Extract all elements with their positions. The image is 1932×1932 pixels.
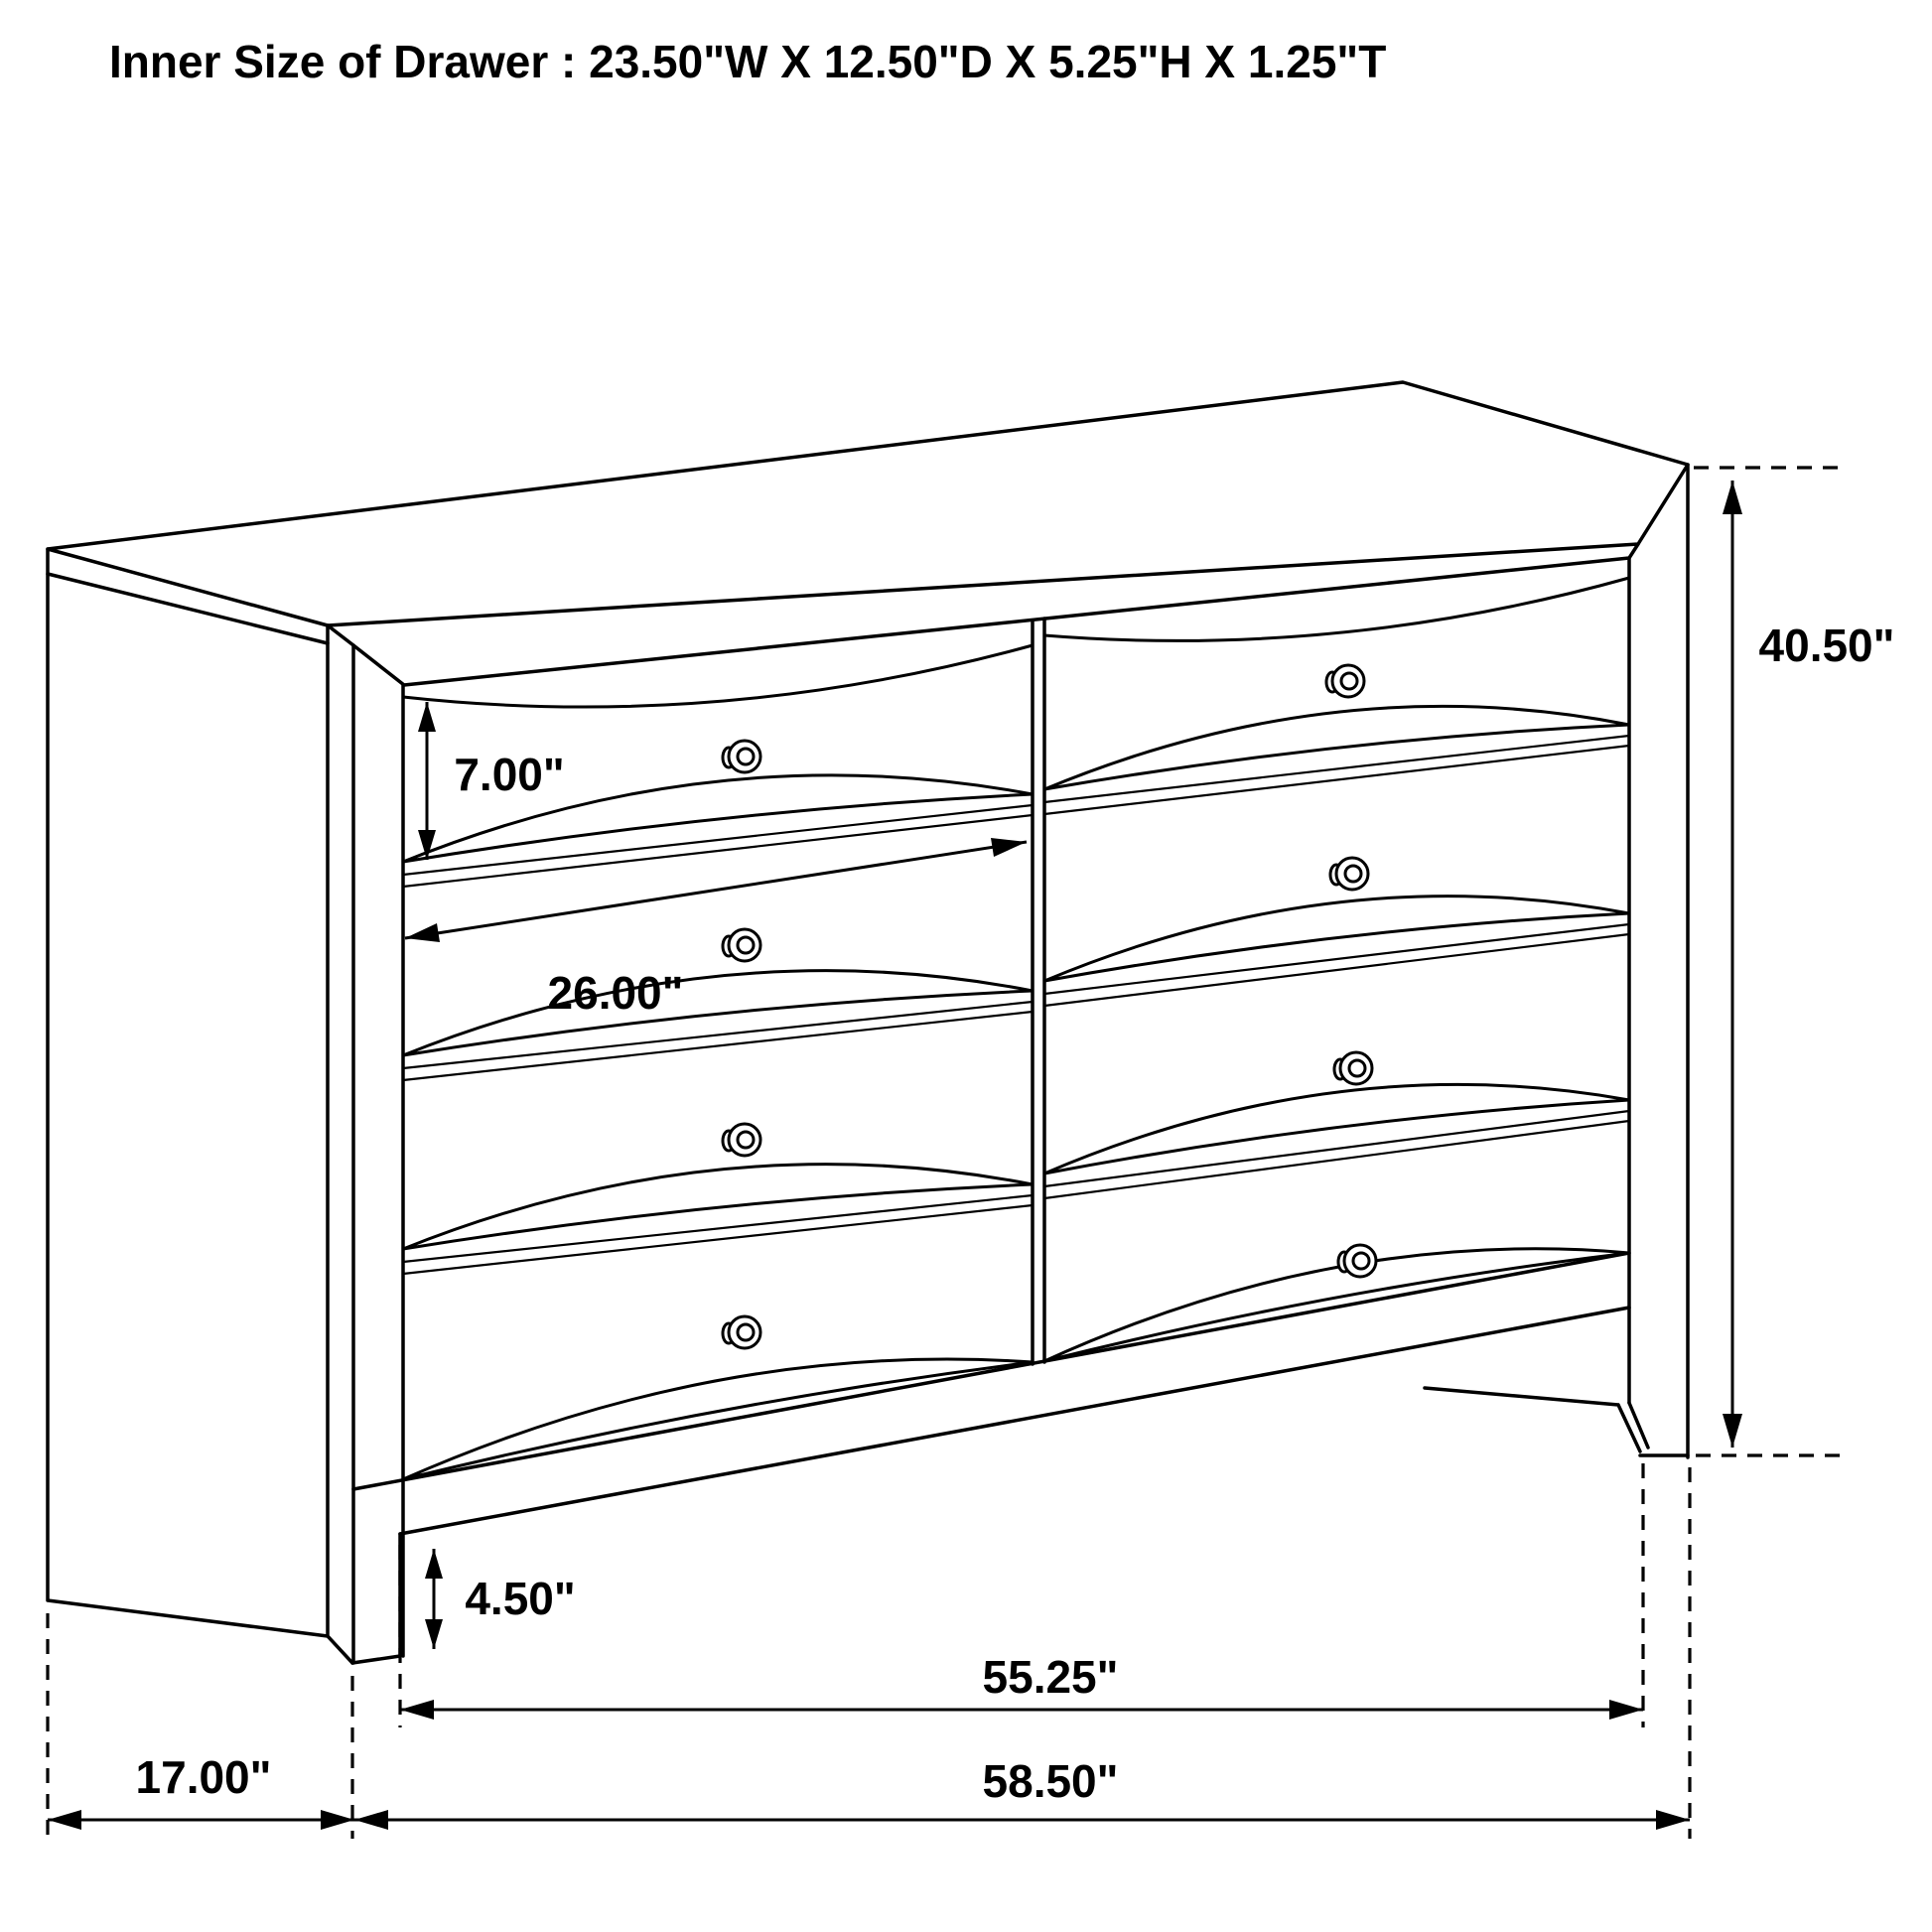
dresser-side-panel (48, 549, 352, 1663)
knob-icon (1334, 1052, 1372, 1084)
dim-label-overall-height: 40.50" (1759, 620, 1895, 671)
dim-label-depth: 17.00" (136, 1751, 272, 1803)
dimension-diagram-page: Inner Size of Drawer : 23.50"W X 12.50"D… (0, 0, 1932, 1932)
bottom-rail (353, 1253, 1629, 1534)
knob-icon (1326, 665, 1364, 697)
page-title: Inner Size of Drawer : 23.50"W X 12.50"D… (109, 36, 1386, 87)
dresser-top-panel (48, 382, 1688, 625)
dim-label-drawer-width: 26.00" (548, 967, 684, 1019)
dim-overall-width: 58.50" (354, 1755, 1690, 1830)
knob-icon (1338, 1245, 1376, 1277)
drawer-knobs (723, 665, 1376, 1348)
front-left-stile (353, 645, 403, 1663)
left-column-drawer-fronts (403, 775, 1033, 1479)
right-column-drawer-fronts (1044, 706, 1629, 1361)
knob-icon (723, 1316, 760, 1348)
front-right-stile (1629, 465, 1688, 1457)
dim-label-base-height: 4.50" (465, 1573, 575, 1624)
center-divider (1033, 619, 1044, 1364)
dim-label-overall-width: 58.50" (983, 1755, 1119, 1807)
dim-label-drawer-height: 7.00" (454, 749, 564, 800)
knob-icon (1330, 858, 1368, 890)
front-right-leg (1425, 1388, 1688, 1455)
extension-lines (48, 1463, 1690, 1839)
dim-leg-span-width: 55.25" (400, 1651, 1643, 1720)
knob-icon (723, 741, 760, 772)
dresser-drawing (48, 382, 1688, 1663)
knob-icon (723, 929, 760, 961)
dim-label-leg-span-width: 55.25" (983, 1651, 1119, 1703)
front-left-leg (352, 1534, 400, 1663)
dim-depth: 17.00" (48, 1751, 354, 1830)
dim-drawer-height: 7.00" (418, 702, 565, 860)
knob-icon (723, 1124, 760, 1156)
dim-overall-height: 40.50" (1694, 468, 1894, 1455)
dresser-dimension-drawing: Inner Size of Drawer : 23.50"W X 12.50"D… (0, 0, 1932, 1932)
dim-base-height: 4.50" (425, 1549, 576, 1649)
